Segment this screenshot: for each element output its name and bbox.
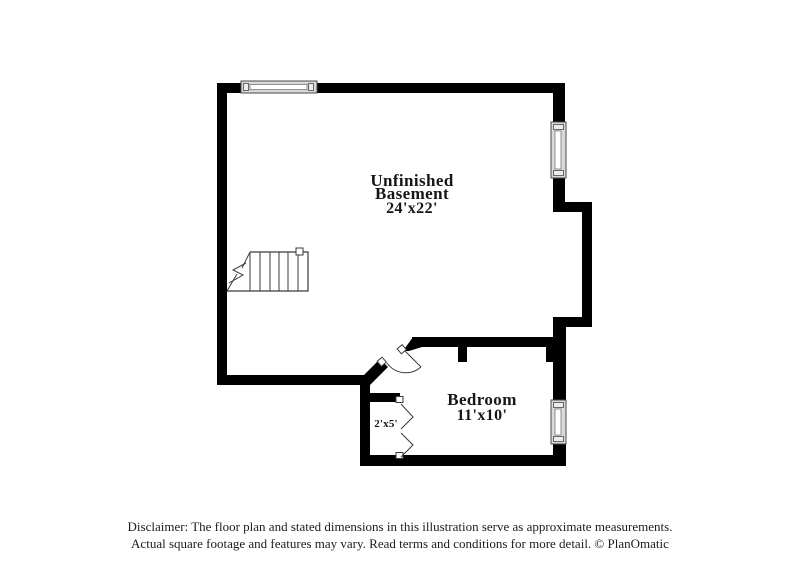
- wall-pilaster-junction: [546, 347, 556, 362]
- wall-segment-main-bottom: [217, 375, 370, 385]
- disclaimer: Disclaimer: The floor plan and stated di…: [128, 519, 673, 551]
- walls: [217, 83, 592, 466]
- door-leaf: [404, 350, 421, 367]
- door-jamb: [397, 345, 406, 354]
- window-icon-right-upper: [551, 122, 566, 178]
- wall-segment-closet-left: [360, 375, 370, 466]
- wall-segment-bedroom-top: [412, 337, 553, 347]
- stairs-newel-post: [296, 248, 303, 255]
- room-labels: Unfinished Basement 24'x22' Bedroom 11'x…: [370, 171, 516, 430]
- stairs-cut-line: [227, 252, 250, 291]
- wall-stub-bedroom: [458, 347, 467, 362]
- closet-jamb: [396, 397, 403, 403]
- window-icon-top: [241, 81, 317, 93]
- wall-segment-bump-right: [582, 202, 592, 327]
- basement-dimensions: 24'x22': [386, 200, 438, 217]
- door-swing-arc: [387, 363, 421, 373]
- closet-dimensions: 2'x5': [374, 418, 398, 430]
- disclaimer-line1: Disclaimer: The floor plan and stated di…: [128, 519, 673, 534]
- floor-plan-canvas: Unfinished Basement 24'x22' Bedroom 11'x…: [0, 0, 800, 582]
- disclaimer-line2: Actual square footage and features may v…: [131, 536, 669, 551]
- bedroom-dimensions: 11'x10': [457, 407, 508, 424]
- wall-segment-bottom: [360, 455, 566, 466]
- wall-segment-left: [217, 83, 227, 385]
- bifold-door-icon: [396, 397, 413, 459]
- floor-plan-drawing: Unfinished Basement 24'x22' Bedroom 11'x…: [0, 0, 800, 582]
- stairs-icon: [227, 248, 308, 291]
- window-icon-bedroom: [551, 400, 566, 444]
